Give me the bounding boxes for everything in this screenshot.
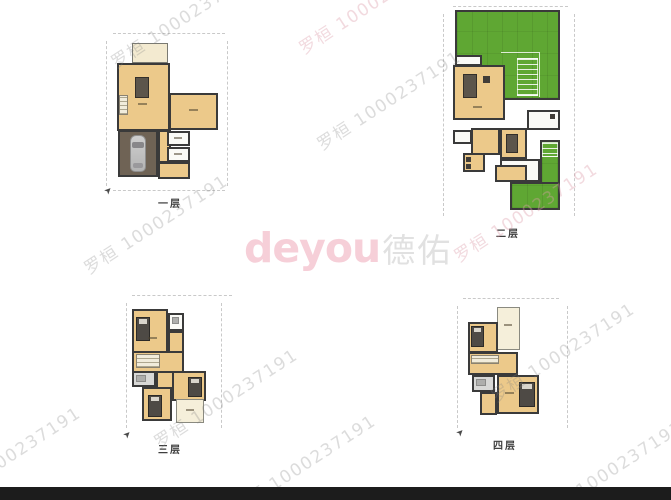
dining-table <box>506 134 518 153</box>
cabinet <box>483 76 490 83</box>
dimension-line <box>463 298 559 299</box>
watermark-text: 罗桓 1000237191 <box>311 43 465 155</box>
dimension-line <box>457 306 458 428</box>
bed-icon <box>519 382 535 407</box>
dimension-line <box>132 295 232 296</box>
closet <box>136 354 160 368</box>
north-arrow-icon: ➤ <box>122 429 134 441</box>
tub-icon <box>476 379 486 386</box>
floor-3-label: 三层 <box>158 441 182 456</box>
bed-icon <box>188 377 202 397</box>
closet <box>119 95 128 115</box>
floor-2-label: 二层 <box>496 225 520 240</box>
room-small <box>480 392 497 415</box>
room-porch <box>132 43 168 63</box>
room-label <box>148 337 157 339</box>
deyou-logo-latin: deyou <box>244 228 380 269</box>
room-label <box>174 137 182 139</box>
watermark-text: 罗桓 1000237191 <box>293 0 447 59</box>
floor-4-label: 四层 <box>493 437 517 452</box>
icon-fixture <box>550 114 555 119</box>
sink-icon <box>466 164 471 169</box>
dimension-line <box>453 6 568 7</box>
room-hall-upper <box>527 110 560 130</box>
room-bath <box>453 130 472 144</box>
dimension-line <box>106 41 107 186</box>
dimension-line <box>567 306 568 428</box>
room-kitchen <box>463 153 485 172</box>
closet <box>471 355 499 364</box>
room-entry <box>495 165 527 182</box>
room-terrace <box>497 307 520 350</box>
bed-icon <box>463 74 477 98</box>
stairs <box>517 58 538 96</box>
floor-plan-1: ➤ 一层 <box>105 33 235 218</box>
room-terrace <box>176 399 204 423</box>
floor-plan-sheet: ➤ 一层 二层 <box>0 0 671 500</box>
north-arrow-icon: ➤ <box>455 427 467 439</box>
dimension-line <box>126 303 127 428</box>
stove-icon <box>466 157 471 162</box>
deyou-logo-cjk: 德佑 <box>382 234 452 267</box>
dining-table <box>135 77 149 98</box>
toilet-icon <box>172 317 179 324</box>
room-label <box>505 392 514 394</box>
room-label <box>186 409 194 411</box>
floor-plan-4: ➤ 四层 <box>455 298 580 458</box>
room-study <box>453 65 505 120</box>
tub-icon <box>136 375 146 382</box>
room-living <box>169 93 218 130</box>
room-label <box>504 324 512 326</box>
dimension-line <box>443 14 444 216</box>
floor-plan-2: 二层 <box>443 6 577 244</box>
room-label <box>138 103 147 105</box>
lawn-lower <box>510 182 560 210</box>
room-label <box>174 153 182 155</box>
car-icon <box>130 135 146 172</box>
stairs <box>542 142 558 157</box>
room-study <box>168 331 184 353</box>
floor-1-label: 一层 <box>158 195 182 210</box>
watermark-text: 罗桓 1000237191 <box>0 399 85 500</box>
bed-icon <box>148 395 162 417</box>
dimension-line <box>221 303 222 428</box>
room-storage <box>158 162 190 179</box>
north-arrow-icon: ➤ <box>103 185 115 197</box>
bed-icon <box>471 326 484 347</box>
room-label <box>189 109 198 111</box>
dimension-line <box>113 190 225 191</box>
room-label <box>473 106 482 108</box>
bottom-bar <box>0 487 671 500</box>
deyou-logo: deyou 德佑 <box>244 228 452 269</box>
dimension-line <box>113 33 225 34</box>
dimension-line <box>227 41 228 186</box>
room-corridor <box>471 128 500 155</box>
dimension-line <box>574 14 575 216</box>
floor-plan-3: ➤ 三层 <box>126 293 256 455</box>
